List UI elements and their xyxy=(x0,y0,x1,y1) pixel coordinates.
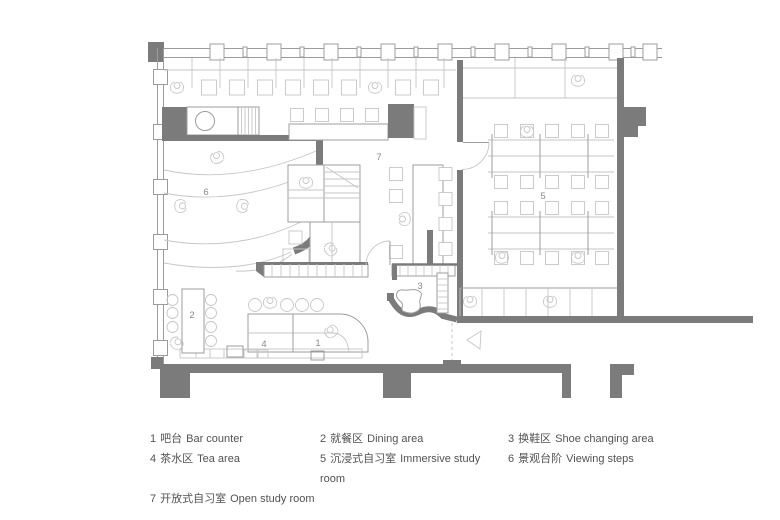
legend-number: 6 xyxy=(508,453,514,465)
room-label-3: 3 xyxy=(417,281,422,292)
legend-item: 6景观台阶Viewing steps xyxy=(508,449,750,489)
legend-zh: 景观台阶 xyxy=(518,453,562,465)
legend-zh: 换鞋区 xyxy=(518,433,551,445)
right-wall xyxy=(617,58,646,322)
legend-en: Tea area xyxy=(197,453,240,465)
room-2-dining: 2 xyxy=(167,289,217,353)
stair-table-cluster xyxy=(288,165,360,222)
platform-counter xyxy=(187,107,238,135)
person-figure xyxy=(399,213,410,226)
bottom-wall xyxy=(160,364,634,398)
room-label-5: 5 xyxy=(540,191,545,202)
legend-en: Viewing steps xyxy=(566,453,634,465)
legend-zh: 开放式自习室 xyxy=(160,493,226,505)
top-wall xyxy=(148,42,662,62)
legend-item: 5沉浸式自习室Immersive study room xyxy=(320,449,508,489)
legend-number: 5 xyxy=(320,453,326,465)
legend-item: 1吧台Bar counter xyxy=(150,429,320,449)
legend-zh: 沉浸式自习室 xyxy=(330,453,396,465)
person-figure xyxy=(544,296,557,307)
left-wall xyxy=(151,48,168,369)
person-figure xyxy=(572,75,585,86)
legend-item: 7开放式自习室Open study room xyxy=(150,489,320,509)
room-label-7: 7 xyxy=(376,152,381,163)
person-figure xyxy=(464,296,477,307)
person-figure xyxy=(171,82,184,93)
locker-row xyxy=(460,288,617,316)
person-figure xyxy=(174,199,186,213)
corridor-wall xyxy=(457,316,753,323)
room-label-2: 2 xyxy=(189,310,194,321)
dining-table xyxy=(182,289,204,353)
legend-zh: 茶水区 xyxy=(160,453,193,465)
wall-stub xyxy=(427,230,433,265)
legend-en: Open study room xyxy=(230,493,314,505)
long-table xyxy=(289,124,388,140)
person-figure xyxy=(369,82,382,93)
legend-number: 7 xyxy=(150,493,156,505)
legend-item: 3换鞋区Shoe changing area xyxy=(508,429,750,449)
legend: 1吧台Bar counter 2就餐区Dining area 3换鞋区Shoe … xyxy=(150,429,750,509)
legend-en: Shoe changing area xyxy=(555,433,653,445)
entry-arrow-icon xyxy=(467,331,481,349)
legend-number: 4 xyxy=(150,453,156,465)
room-1-4-bar-tea: 4 1 xyxy=(180,297,368,360)
legend-en: Bar counter xyxy=(186,433,243,445)
entry-marker xyxy=(443,323,481,365)
legend-en: Dining area xyxy=(367,433,423,445)
door-arc xyxy=(462,143,489,170)
column-block xyxy=(388,104,414,138)
wall-pier xyxy=(624,107,646,126)
corner-column xyxy=(148,42,164,62)
room-label-4: 4 xyxy=(261,339,266,350)
room-5-immersive-study: 5 xyxy=(460,58,617,316)
legend-number: 2 xyxy=(320,433,326,445)
divider-wall-5-7 xyxy=(457,60,489,322)
room-label-1: 1 xyxy=(315,338,320,349)
door-arc xyxy=(366,241,390,266)
square-table xyxy=(310,222,360,266)
person-figure xyxy=(236,199,249,214)
legend-item: 2就餐区Dining area xyxy=(320,429,508,449)
legend-number: 1 xyxy=(150,433,156,445)
window-desk-row xyxy=(164,58,456,95)
person-figure xyxy=(264,297,277,308)
legend-zh: 吧台 xyxy=(160,433,182,445)
vertical-study-table xyxy=(390,165,453,265)
room-3-shoe-area: 3 xyxy=(387,273,457,320)
legend-item: 4茶水区Tea area xyxy=(150,449,320,489)
desk-cluster-b xyxy=(488,202,614,265)
legend-number: 3 xyxy=(508,433,514,445)
desk-cluster-a xyxy=(488,125,614,189)
room-label-6: 6 xyxy=(203,187,208,198)
person-figure xyxy=(209,150,225,165)
legend-zh: 就餐区 xyxy=(330,433,363,445)
